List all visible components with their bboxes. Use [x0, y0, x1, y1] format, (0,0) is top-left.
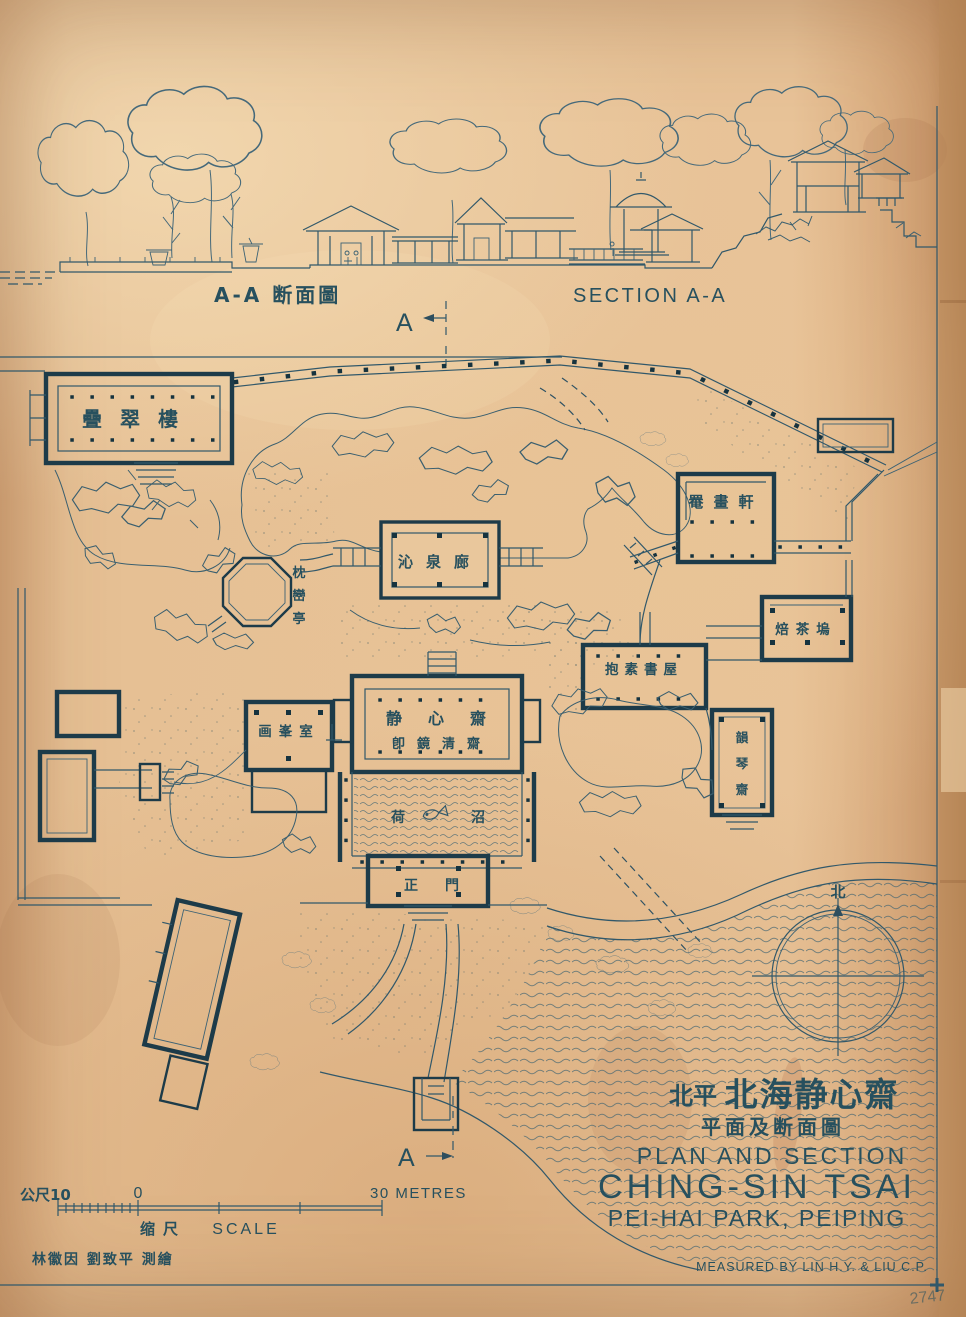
building-beichawu: 焙茶塢 — [706, 560, 852, 660]
building-zhenluanting: 枕 巒 亭 — [150, 545, 306, 653]
label-zhengmen-2: 門 — [445, 878, 459, 894]
label-huafengshi: 画峯室 — [258, 723, 320, 740]
label-diecuilou: 疊翠樓 — [82, 407, 196, 431]
label-yanhuaxuan: 罨畫軒 — [687, 493, 763, 511]
cut-letter-top: A — [396, 309, 413, 337]
title-credit: MEASURED BY LIN H.Y. & LIU C.P. — [696, 1260, 928, 1274]
scale-end-label: 30 METRES — [370, 1185, 467, 1202]
title-subtitle-zh: 平面及断面圖 — [701, 1115, 845, 1139]
label-qinquanlang: 沁泉廊 — [398, 553, 482, 571]
building-jingxinzhai: 静心齋 卽鏡清齋 — [334, 652, 540, 772]
scale-caption-en: SCALE — [212, 1221, 279, 1238]
rockery-northwest — [55, 470, 230, 574]
label-zhenluanting-1: 枕 — [292, 565, 305, 581]
building-qinquanlang: 沁泉廊 — [300, 522, 543, 598]
building-huafengshi: 画峯室 — [246, 702, 342, 812]
cut-letter-bottom: A — [398, 1144, 415, 1172]
lotus-pond-court: 荷 沼 — [340, 772, 534, 868]
scale-metric-label: 公尺10 — [20, 1186, 71, 1204]
measured-drawing: A-A 断面圖 SECTION A-A A — [0, 0, 966, 1317]
building-yunqinzhai: 韻 琴 齋 — [706, 708, 772, 829]
label-hezhao-1: 荷 — [390, 809, 405, 826]
label-zhenluanting-3: 亭 — [292, 611, 305, 627]
label-beichawu: 焙茶塢 — [775, 621, 837, 638]
section-cut-marker-bottom: A — [398, 1096, 453, 1172]
section-label-zh: A-A 断面圖 — [214, 283, 341, 307]
title-name-zh: 北海静心齋 — [725, 1075, 900, 1114]
section-trees — [38, 86, 893, 266]
northeast-kiosk — [818, 419, 893, 452]
label-jingxinzhai: 静心齋 — [386, 709, 512, 728]
surveyor-signature: 林徽因 劉致平 測繪 — [32, 1251, 174, 1268]
label-yunqinzhai-3: 齋 — [735, 782, 749, 797]
plan-drawing: 疊翠樓 — [0, 356, 937, 1278]
scale-zero-label: 0 — [134, 1185, 143, 1202]
label-zhengmen-1: 正 — [404, 878, 418, 894]
label-yunqinzhai-2: 琴 — [735, 756, 749, 771]
dock — [414, 1078, 458, 1130]
compass-north-label: 北 — [830, 883, 845, 901]
drawing-sheet: A-A 断面圖 SECTION A-A A — [0, 0, 966, 1317]
label-yunqinzhai-1: 韻 — [736, 730, 749, 745]
label-baosushuwu: 抱素書屋 — [605, 661, 683, 678]
southwest-buildings — [123, 898, 242, 1109]
section-label-en: SECTION A-A — [573, 285, 727, 307]
title-line3: PEI-HAI PARK, PEIPING — [608, 1205, 906, 1231]
label-hezhao-2: 沼 — [471, 810, 485, 826]
title-line1: PLAN AND SECTION — [637, 1143, 907, 1169]
scale-bar: 公尺10 0 30 METRES 缩尺 SCALE 林徽因 劉致平 測繪 — [20, 1185, 467, 1268]
label-zhenluanting-2: 巒 — [292, 588, 305, 604]
title-region-zh: 北平 — [669, 1082, 717, 1110]
label-jingxinzhai-alias: 卽鏡清齋 — [392, 736, 492, 752]
title-line2: CHING-SIN TSAI — [598, 1168, 916, 1206]
scale-caption-zh: 缩尺 — [140, 1220, 186, 1238]
